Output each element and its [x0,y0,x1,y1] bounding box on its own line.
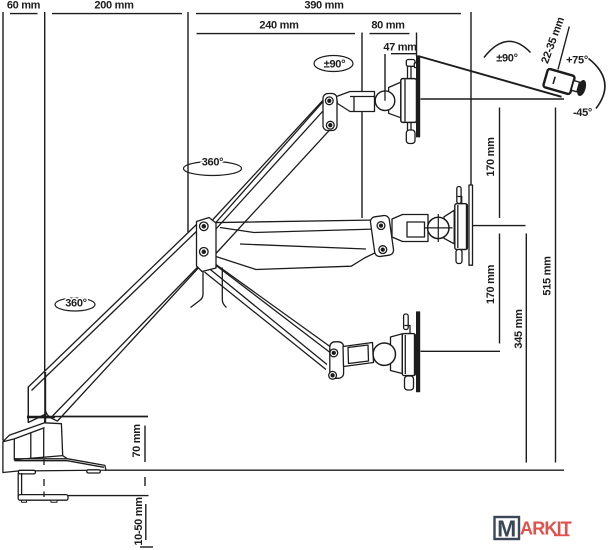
svg-text:170 mm: 170 mm [485,137,497,177]
svg-text:360°: 360° [65,298,87,310]
svg-text:345 mm: 345 mm [513,309,525,349]
svg-text:515 mm: 515 mm [542,256,554,296]
svg-text:-45°: -45° [573,107,592,119]
svg-text:10-50 mm: 10-50 mm [133,497,145,546]
svg-text:80 mm: 80 mm [371,20,405,32]
svg-text:200 mm: 200 mm [94,0,134,12]
svg-text:60 mm: 60 mm [7,0,41,12]
svg-text:360°: 360° [202,157,224,169]
svg-text:240 mm: 240 mm [259,20,299,32]
svg-text:170 mm: 170 mm [485,264,497,304]
svg-text:±90°: ±90° [496,53,517,65]
svg-text:390 mm: 390 mm [304,0,344,12]
svg-text:±90°: ±90° [324,59,345,71]
svg-text:M: M [497,516,516,542]
svg-text:70 mm: 70 mm [131,424,143,458]
svg-text:+75°: +75° [566,55,588,67]
svg-text:47 mm: 47 mm [383,42,417,54]
